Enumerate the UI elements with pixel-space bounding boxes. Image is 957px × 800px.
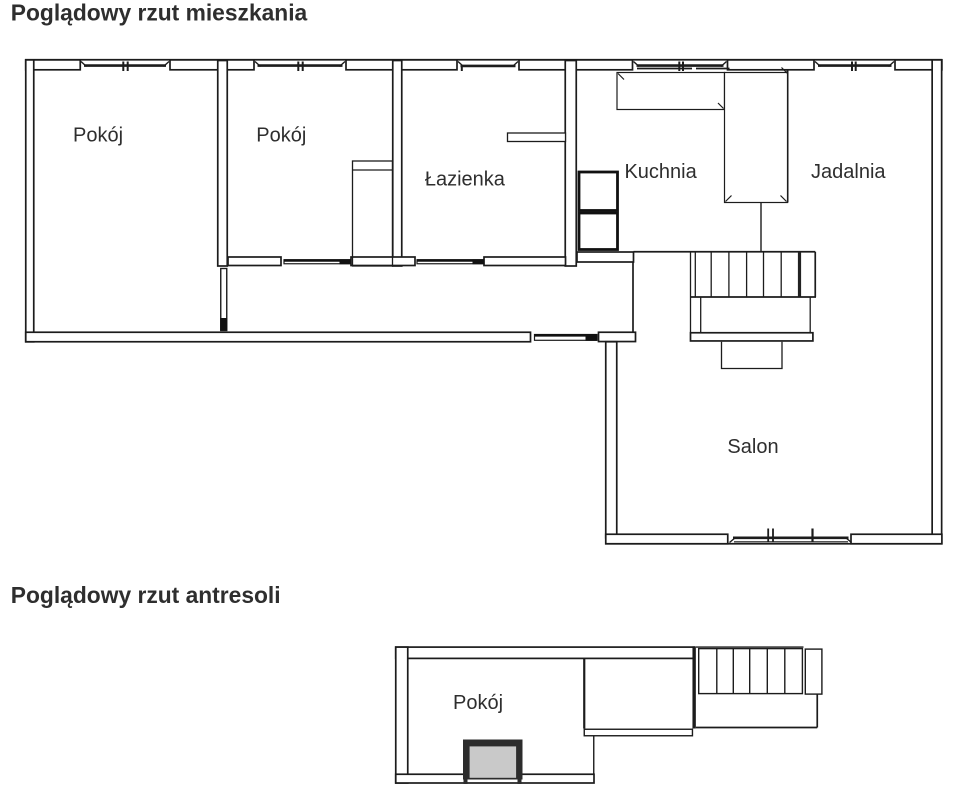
svg-text:Poglądowy rzut antresoli: Poglądowy rzut antresoli xyxy=(11,582,281,608)
svg-text:Pokój: Pokój xyxy=(73,125,123,147)
svg-text:Jadalnia: Jadalnia xyxy=(811,161,886,183)
svg-text:Pokój: Pokój xyxy=(453,692,503,714)
svg-text:Salon: Salon xyxy=(727,436,778,458)
svg-text:Łazienka: Łazienka xyxy=(425,168,506,190)
svg-text:Kuchnia: Kuchnia xyxy=(624,161,697,183)
svg-text:Poglądowy rzut mieszkania: Poglądowy rzut mieszkania xyxy=(11,0,308,25)
svg-text:Pokój: Pokój xyxy=(256,125,306,147)
